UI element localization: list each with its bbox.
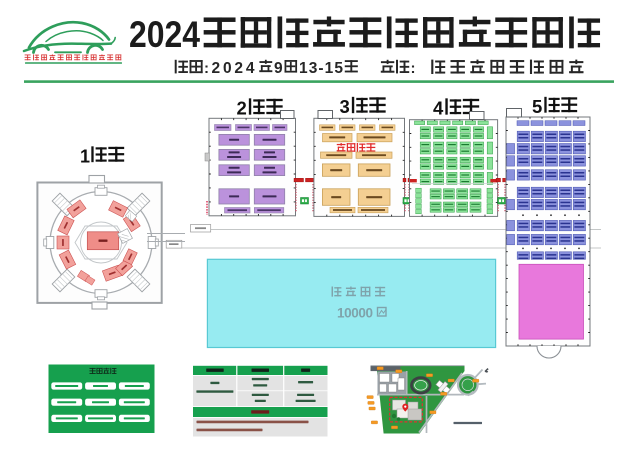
svg-text::: : — [204, 60, 209, 77]
svg-text:9: 9 — [274, 60, 283, 77]
svg-text:2: 2 — [237, 98, 247, 119]
svg-text:5: 5 — [532, 96, 542, 117]
svg-text:4: 4 — [433, 98, 444, 119]
svg-text:10000: 10000 — [337, 306, 373, 321]
svg-text:13-15: 13-15 — [299, 60, 343, 77]
svg-text:3: 3 — [340, 96, 350, 117]
svg-text::: : — [411, 60, 416, 77]
svg-text:1: 1 — [80, 147, 90, 167]
svg-text:2024: 2024 — [129, 14, 200, 55]
